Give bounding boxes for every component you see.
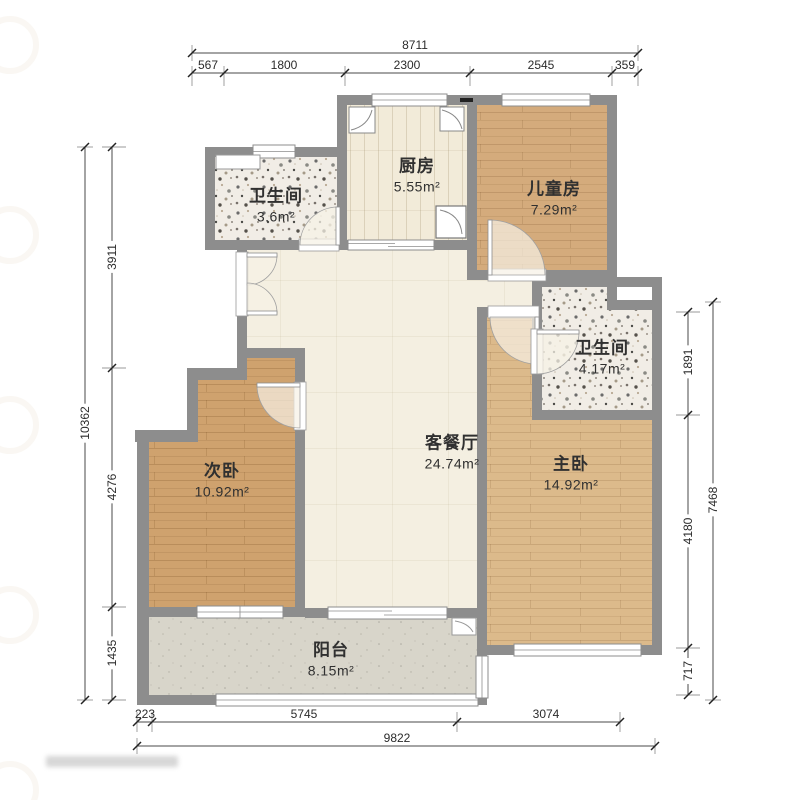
dim-top-seg-2: 1800 [271, 59, 298, 71]
room-area: 5.55m² [394, 179, 441, 195]
room-name: 主卧 [544, 450, 599, 475]
window-kids [502, 94, 590, 106]
room-label-second-bedroom: 次卧 10.92m² [195, 457, 250, 500]
floorplan-canvas [0, 0, 800, 800]
room-name: 次卧 [195, 457, 250, 482]
window-kitchen [372, 94, 447, 106]
dim-top-seg-4: 2545 [528, 59, 555, 71]
dim-top-seg-5: 359 [615, 59, 635, 71]
room-label-balcony: 阳台 8.15m² [308, 636, 355, 679]
dim-bottom-seg-2: 5745 [291, 708, 318, 720]
kitchen-sink [436, 206, 466, 238]
window-balcony [216, 694, 478, 706]
kitchen-corner-cabinet-left [349, 107, 375, 133]
room-area: 24.74m² [425, 456, 480, 472]
dim-bottom-seg-3: 3074 [533, 708, 560, 720]
room-area: 8.15m² [308, 663, 355, 679]
kitchen-corner-cabinet-right [440, 107, 464, 131]
room-label-bath-top: 卫生间 3.6m² [249, 182, 303, 225]
window-balcony-side [476, 656, 488, 698]
dim-top-total: 8711 [402, 39, 428, 51]
dim-right-seg-1: 1891 [682, 346, 694, 379]
balcony-drain [452, 618, 476, 635]
kitchen-sliding-door [348, 240, 434, 250]
dim-right-total: 7468 [707, 484, 719, 517]
room-label-master-bedroom: 主卧 14.92m² [544, 450, 599, 493]
dim-top-seg-3: 2300 [394, 59, 421, 71]
room-label-kitchen: 厨房 5.55m² [394, 152, 441, 195]
room-area: 7.29m² [527, 202, 581, 218]
dim-bottom-total: 9822 [384, 732, 411, 744]
balcony-sliding-door [328, 607, 447, 619]
room-area: 14.92m² [544, 477, 599, 493]
watermark-blurred-text [46, 756, 178, 767]
room-area: 3.6m² [249, 209, 303, 225]
dim-right-seg-3: 717 [682, 658, 694, 684]
dim-top-seg-1: 567 [198, 59, 218, 71]
window-second-bedroom [197, 606, 283, 618]
room-area: 4.17m² [575, 361, 629, 377]
room-name: 卫生间 [249, 182, 303, 207]
kitchen-vent-mark [460, 98, 473, 102]
room-label-bath-right: 卫生间 4.17m² [575, 334, 629, 377]
bath-top-basin [216, 155, 260, 169]
dim-right-seg-2: 4180 [682, 515, 694, 548]
room-name: 儿童房 [527, 175, 581, 200]
dim-left-seg-1: 3911 [106, 241, 118, 273]
floorplan-page: 卫生间 3.6m² 厨房 5.55m² 儿童房 7.29m² 卫生间 4.17m… [0, 0, 800, 800]
room-name: 阳台 [308, 636, 355, 661]
room-name: 卫生间 [575, 334, 629, 359]
room-label-kids: 儿童房 7.29m² [527, 175, 581, 218]
dim-left-seg-2: 4276 [106, 471, 118, 504]
room-name: 厨房 [394, 152, 441, 177]
dim-left-total: 10362 [79, 403, 91, 442]
room-area: 10.92m² [195, 484, 250, 500]
room-label-living: 客餐厅 24.74m² [425, 429, 480, 472]
dim-bottom-seg-1: 223 [135, 708, 155, 720]
window-master-bedroom [514, 644, 641, 656]
dim-left-seg-3: 1435 [106, 637, 118, 670]
room-name: 客餐厅 [425, 429, 480, 454]
